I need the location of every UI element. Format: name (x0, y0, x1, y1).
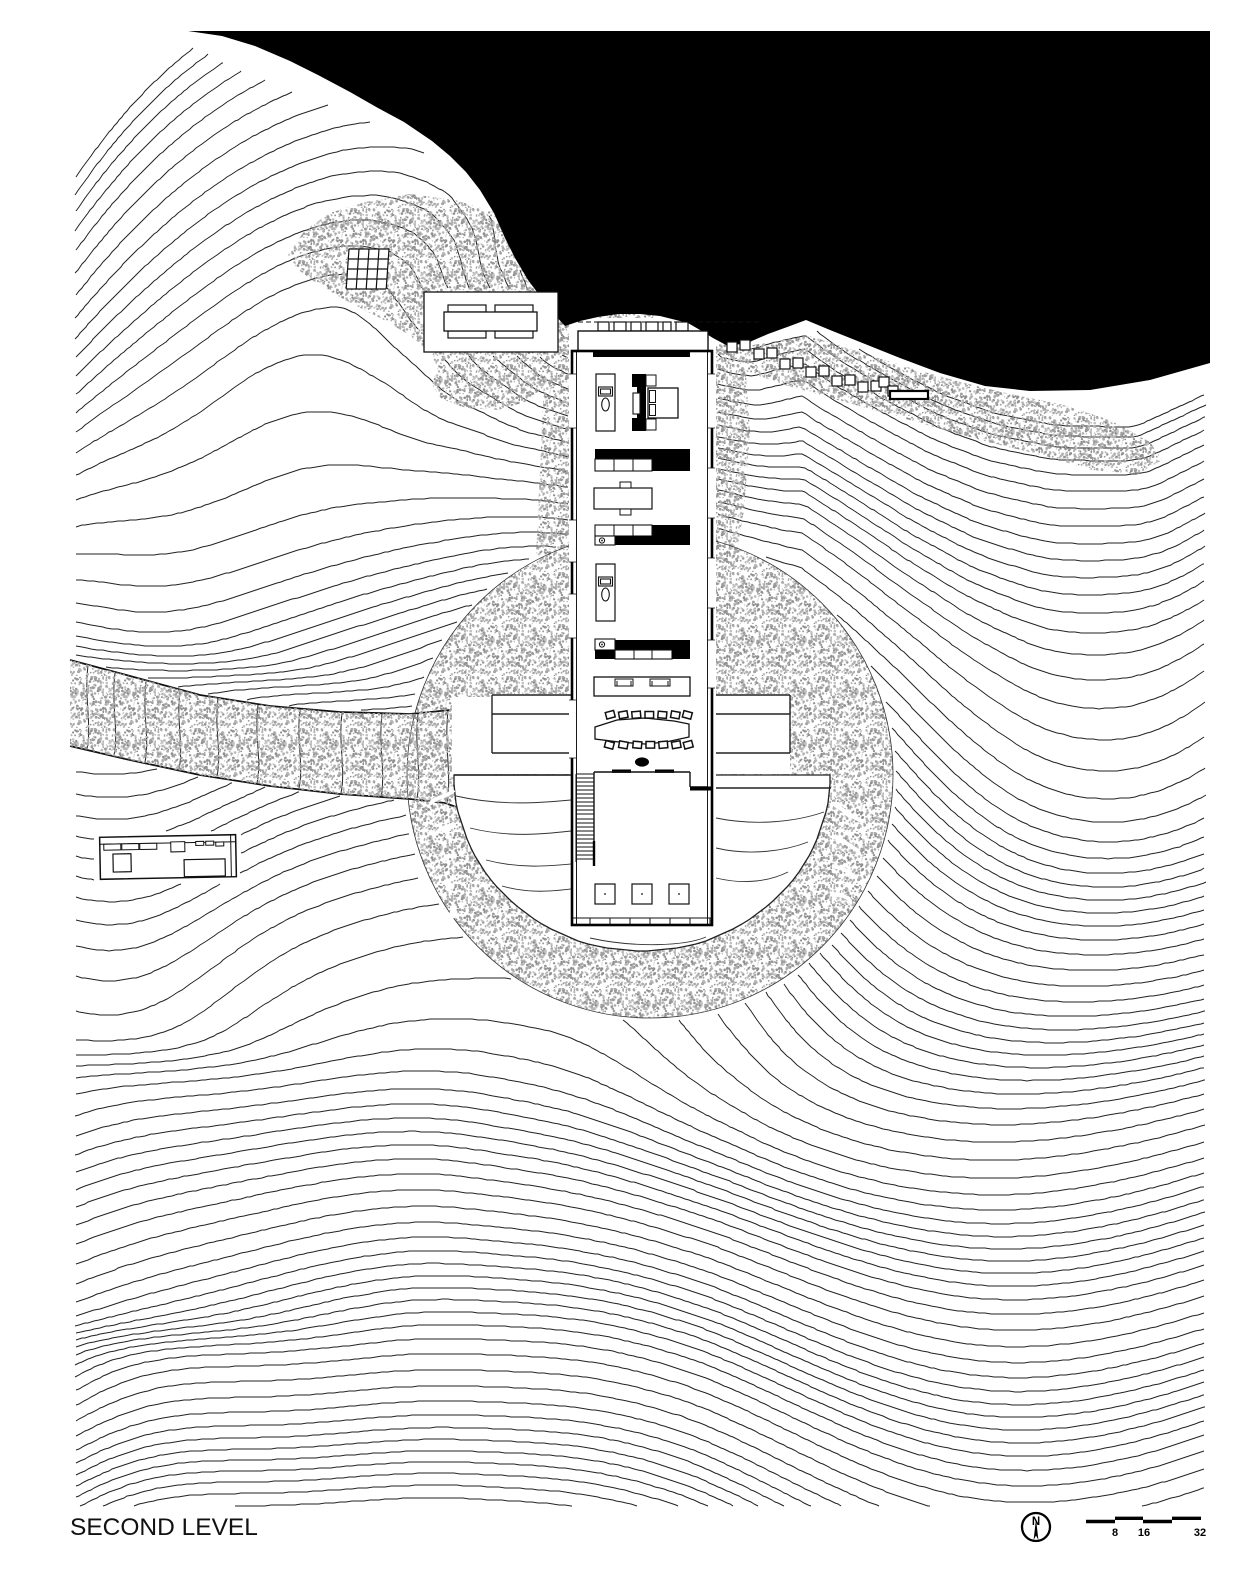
svg-text:16: 16 (1138, 1527, 1150, 1539)
svg-text:SECOND LEVEL: SECOND LEVEL (70, 1514, 258, 1541)
svg-text:32: 32 (1194, 1527, 1206, 1539)
svg-text:8: 8 (1112, 1527, 1118, 1539)
